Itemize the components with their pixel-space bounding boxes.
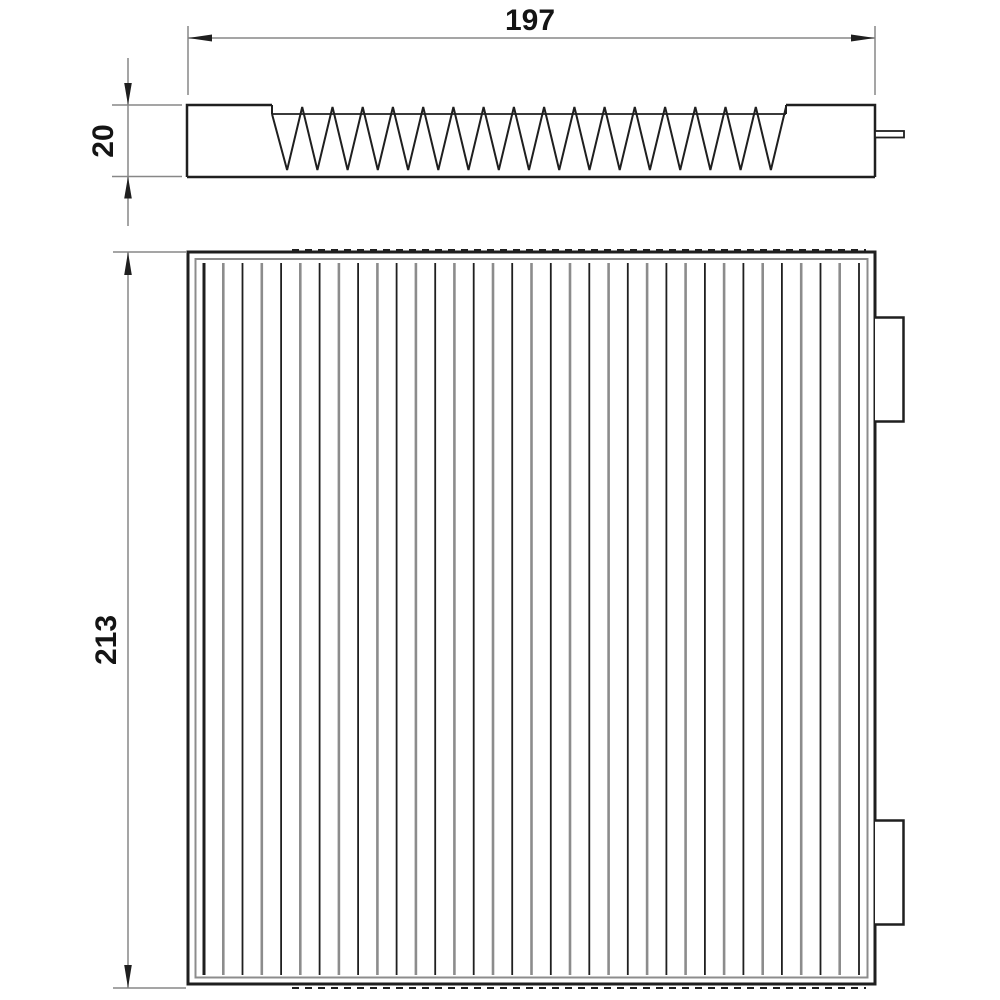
height-arrow-top-icon — [124, 252, 132, 275]
side-view-left-cap — [187, 105, 272, 177]
width-dimension-label: 197 — [505, 4, 555, 37]
dimension-height: 213 — [90, 252, 186, 988]
width-arrow-left-icon — [188, 35, 212, 42]
height-dimension-label: 213 — [90, 615, 123, 665]
thickness-arrow-top-icon — [124, 83, 132, 105]
dimension-width: 197 — [188, 4, 875, 95]
height-arrow-bottom-icon — [124, 965, 132, 988]
side-view-pleats — [272, 107, 786, 170]
front-view-bottom-tab — [875, 821, 904, 925]
thickness-arrow-bottom-icon — [124, 177, 132, 199]
side-view-right-cap — [786, 105, 875, 177]
front-view — [188, 250, 904, 988]
side-view — [187, 105, 904, 177]
technical-drawing-page: 197 20 213 — [0, 0, 1000, 1000]
dimension-thickness: 20 — [87, 58, 182, 226]
side-view-pin — [875, 131, 904, 138]
thickness-dimension-label: 20 — [87, 124, 120, 157]
front-view-top-tab — [875, 318, 904, 422]
drawing-canvas: 197 20 213 — [0, 0, 1000, 1000]
width-arrow-right-icon — [851, 35, 875, 42]
pleat-zigzag — [272, 107, 786, 170]
